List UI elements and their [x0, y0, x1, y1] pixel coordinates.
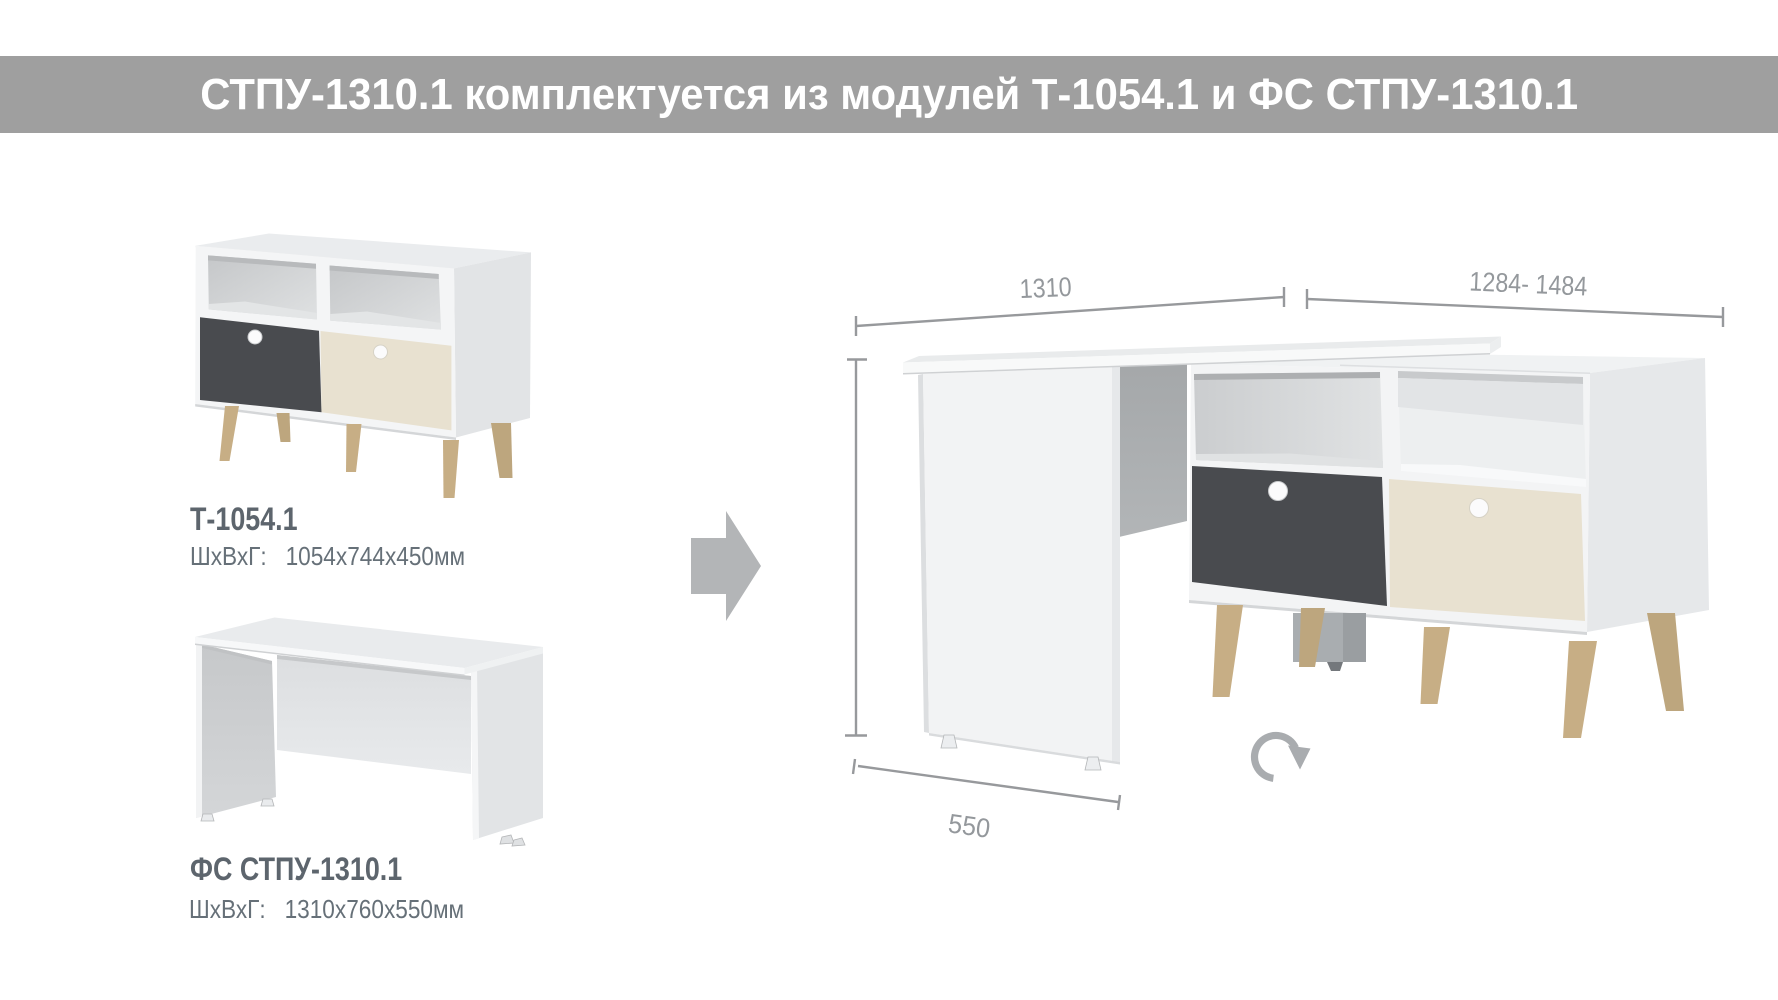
svg-text:550: 550: [946, 808, 992, 844]
svg-text:1310: 1310: [1019, 272, 1072, 304]
svg-text:1284- 1484: 1284- 1484: [1469, 266, 1588, 301]
